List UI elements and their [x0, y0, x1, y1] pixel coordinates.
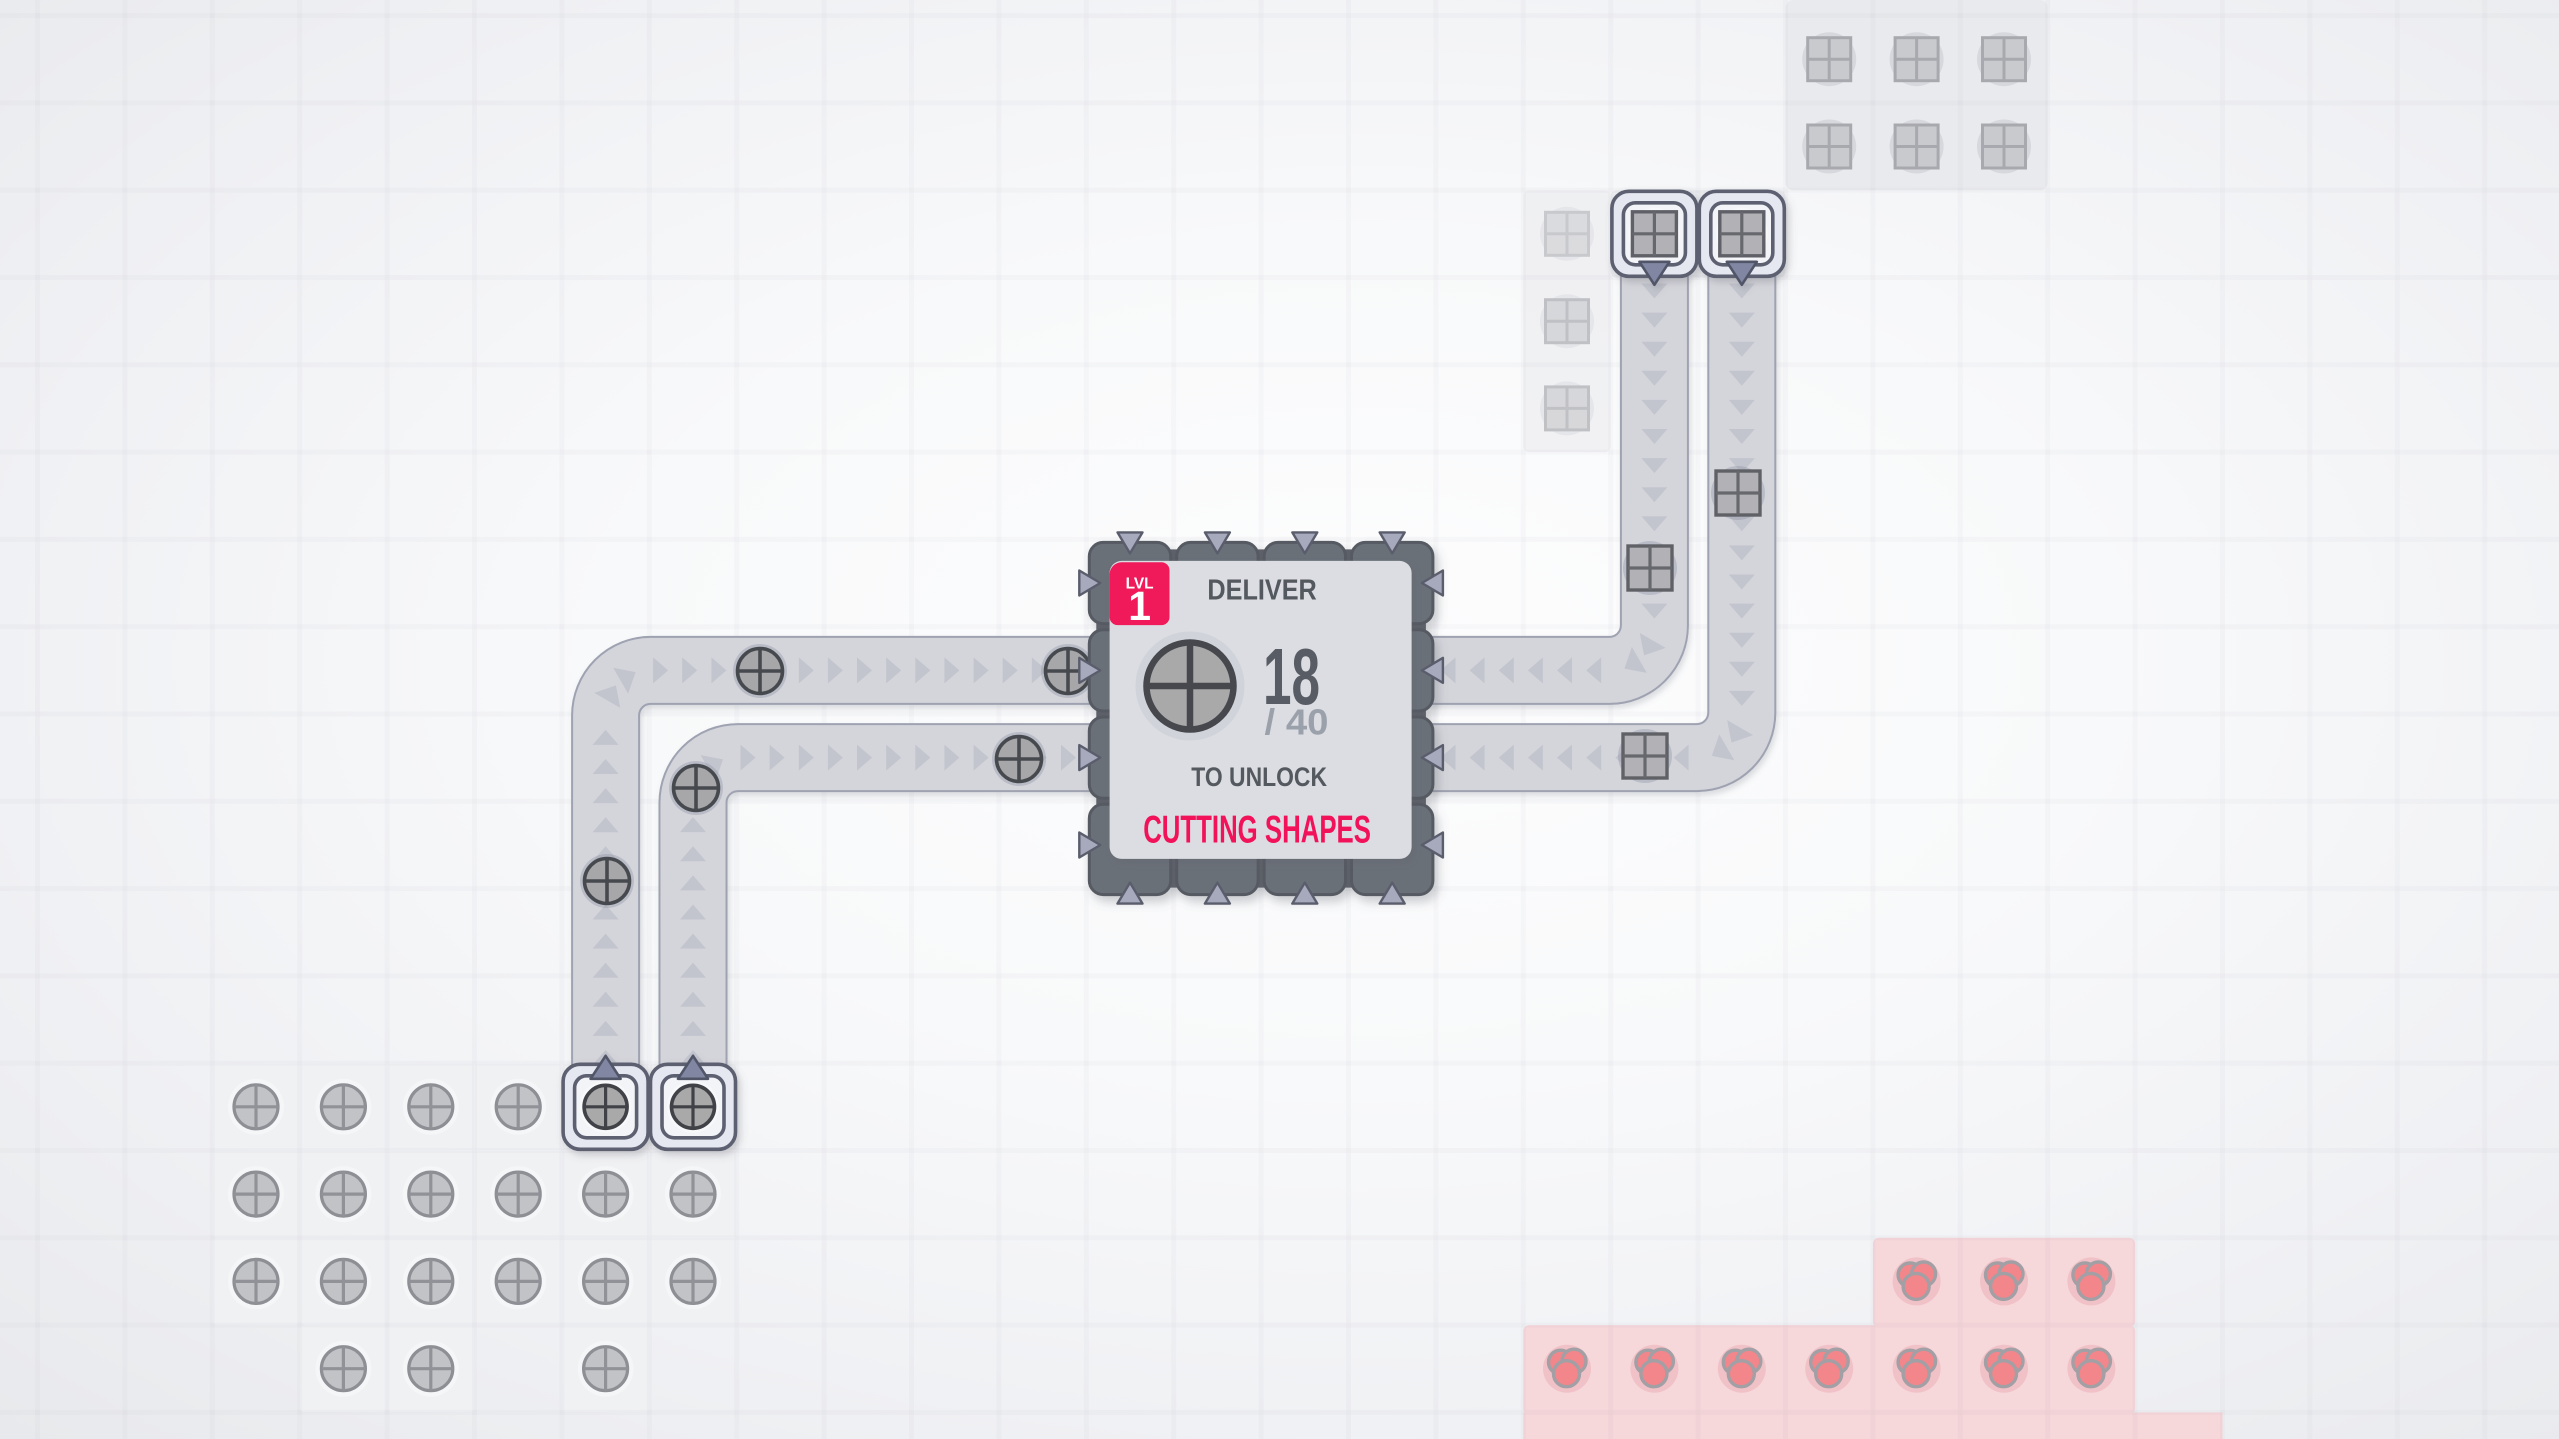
svg-text:1: 1 [1128, 583, 1151, 629]
svg-text:DELIVER: DELIVER [1207, 574, 1316, 606]
svg-text:TO UNLOCK: TO UNLOCK [1191, 762, 1327, 792]
svg-text:CUTTING SHAPES: CUTTING SHAPES [1143, 809, 1371, 852]
svg-text:/ 40: / 40 [1265, 702, 1329, 743]
